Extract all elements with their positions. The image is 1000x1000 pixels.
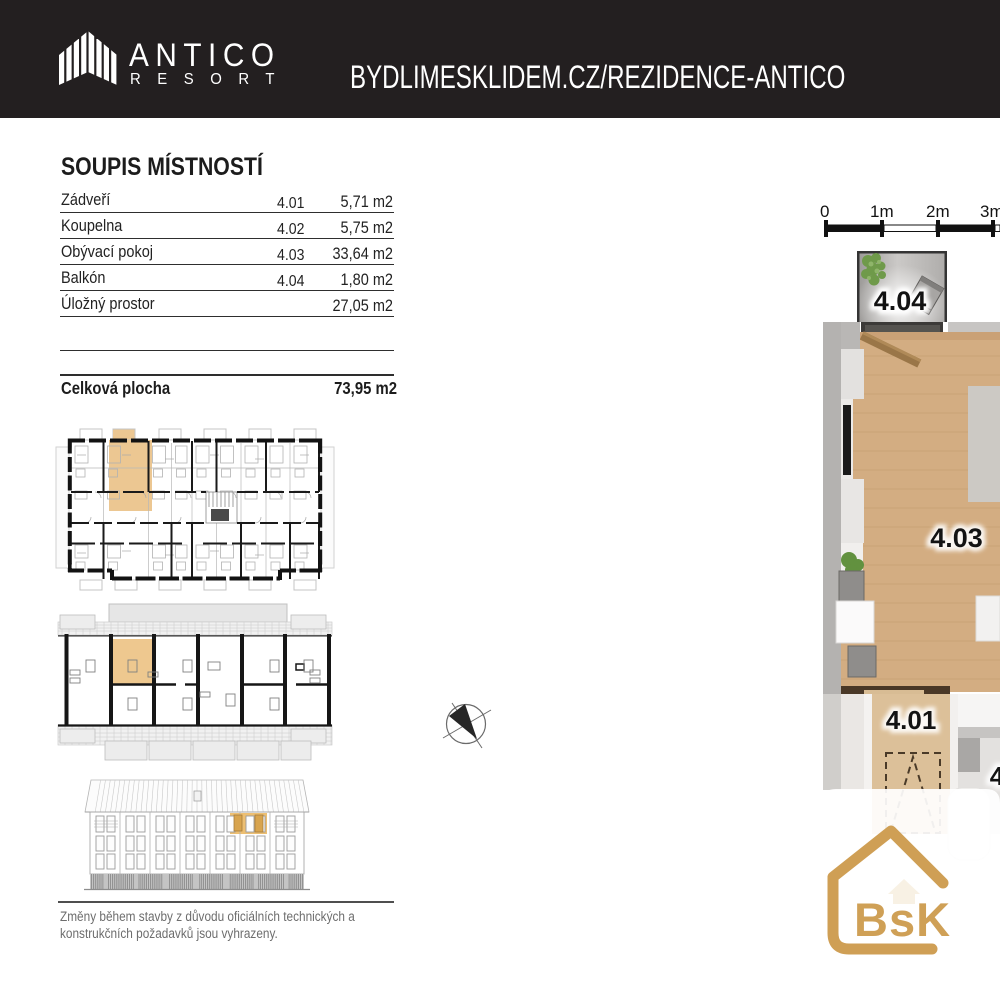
svg-text:4.04: 4.04 <box>874 286 927 316</box>
svg-text:0: 0 <box>820 202 829 221</box>
svg-text:4.01: 4.01 <box>886 705 937 735</box>
svg-text:2m: 2m <box>926 202 950 221</box>
svg-text:3m: 3m <box>980 202 1000 221</box>
svg-text:1m: 1m <box>870 202 894 221</box>
svg-text:BsK: BsK <box>854 893 951 946</box>
svg-text:4.02: 4.02 <box>990 761 1000 791</box>
svg-text:4.03: 4.03 <box>930 523 983 553</box>
